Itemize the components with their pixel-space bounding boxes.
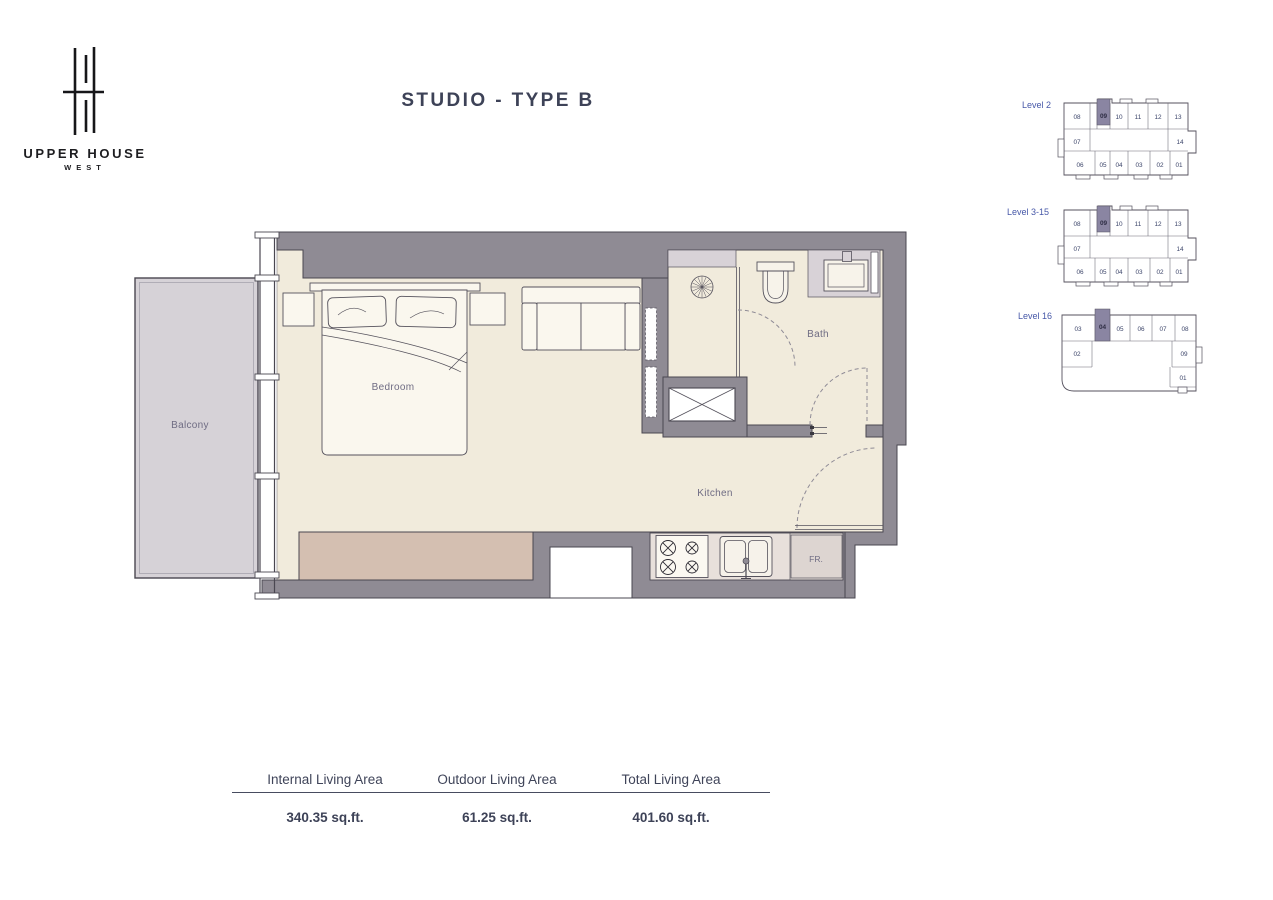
svg-text:02: 02 bbox=[1156, 269, 1164, 276]
svg-text:05: 05 bbox=[1099, 269, 1107, 276]
bedroom-label: Bedroom bbox=[372, 382, 415, 393]
svg-text:07: 07 bbox=[1073, 246, 1081, 253]
keyplan-level-2: Level 2 08 09 10 bbox=[1000, 95, 1210, 195]
svg-text:03: 03 bbox=[1135, 269, 1143, 276]
stat-value: 340.35 sq.ft. bbox=[232, 810, 418, 825]
wall-notch bbox=[550, 547, 632, 598]
svg-text:06: 06 bbox=[1137, 326, 1145, 333]
svg-text:09: 09 bbox=[1100, 113, 1108, 120]
floorplan-drawing: Balcony bbox=[130, 225, 920, 615]
svg-text:08: 08 bbox=[1073, 221, 1081, 228]
svg-text:04: 04 bbox=[1115, 269, 1123, 276]
svg-text:11: 11 bbox=[1135, 221, 1142, 228]
svg-text:04: 04 bbox=[1099, 324, 1107, 331]
svg-text:14: 14 bbox=[1176, 139, 1184, 146]
bath-label: Bath bbox=[807, 329, 829, 340]
wardrobe bbox=[299, 532, 533, 580]
brand-name: UPPER HOUSE bbox=[10, 146, 160, 161]
stat-label: Outdoor Living Area bbox=[404, 772, 590, 787]
svg-text:12: 12 bbox=[1154, 221, 1162, 228]
level-2-label: Level 2 bbox=[1022, 100, 1051, 110]
stats-divider bbox=[232, 792, 770, 793]
balcony-label: Balcony bbox=[171, 420, 209, 431]
svg-text:13: 13 bbox=[1174, 221, 1182, 228]
level-16-label: Level 16 bbox=[1018, 311, 1052, 321]
svg-text:03: 03 bbox=[1135, 162, 1143, 169]
stat-value: 61.25 sq.ft. bbox=[404, 810, 590, 825]
shaft bbox=[669, 388, 735, 421]
floorplan-page: UPPER HOUSE WEST STUDIO - TYPE B Balcony bbox=[0, 0, 1273, 900]
svg-text:09: 09 bbox=[1100, 220, 1108, 227]
brand-tagline: WEST bbox=[10, 163, 160, 172]
brand-logo-icon bbox=[55, 38, 121, 142]
svg-text:01: 01 bbox=[1175, 162, 1183, 169]
stat-label: Internal Living Area bbox=[232, 772, 418, 787]
svg-text:13: 13 bbox=[1174, 114, 1182, 121]
stat-outdoor-area: Outdoor Living Area 61.25 sq.ft. bbox=[404, 772, 590, 825]
svg-text:10: 10 bbox=[1115, 114, 1123, 121]
kitchen-counter: FR. bbox=[650, 533, 843, 580]
svg-text:01: 01 bbox=[1175, 269, 1183, 276]
svg-text:11: 11 bbox=[1135, 114, 1142, 121]
svg-text:10: 10 bbox=[1115, 221, 1123, 228]
sink-icon bbox=[720, 537, 772, 580]
svg-text:12: 12 bbox=[1154, 114, 1162, 121]
level-3-15-highlighted-unit bbox=[1097, 206, 1110, 232]
level-3-15-label: Level 3-15 bbox=[1007, 207, 1049, 217]
keyplan-level-3-15: Level 3-15 08 09 1 bbox=[1000, 202, 1210, 302]
svg-text:03: 03 bbox=[1074, 326, 1082, 333]
svg-text:07: 07 bbox=[1159, 326, 1167, 333]
svg-text:01: 01 bbox=[1179, 375, 1187, 382]
stat-internal-area: Internal Living Area 340.35 sq.ft. bbox=[232, 772, 418, 825]
fridge-label: FR. bbox=[809, 554, 823, 564]
svg-text:07: 07 bbox=[1073, 139, 1081, 146]
balcony: Balcony bbox=[135, 278, 258, 578]
kitchen-label: Kitchen bbox=[697, 488, 732, 499]
stat-value: 401.60 sq.ft. bbox=[578, 810, 764, 825]
page-title: STUDIO - TYPE B bbox=[338, 90, 658, 112]
svg-text:06: 06 bbox=[1076, 269, 1084, 276]
svg-text:02: 02 bbox=[1156, 162, 1164, 169]
svg-text:05: 05 bbox=[1116, 326, 1124, 333]
fridge: FR. bbox=[791, 535, 842, 578]
svg-text:05: 05 bbox=[1099, 162, 1107, 169]
level-2-highlighted-unit bbox=[1097, 99, 1110, 125]
svg-text:06: 06 bbox=[1076, 162, 1084, 169]
sofa bbox=[522, 287, 640, 350]
svg-text:14: 14 bbox=[1176, 246, 1184, 253]
stat-total-area: Total Living Area 401.60 sq.ft. bbox=[578, 772, 764, 825]
svg-text:04: 04 bbox=[1115, 162, 1123, 169]
stat-label: Total Living Area bbox=[578, 772, 764, 787]
svg-text:08: 08 bbox=[1073, 114, 1081, 121]
svg-text:02: 02 bbox=[1073, 351, 1081, 358]
svg-text:09: 09 bbox=[1180, 351, 1188, 358]
keyplan-level-16: Level 16 03 04 05 06 07 08 02 09 bbox=[1000, 305, 1210, 405]
stove-icon bbox=[656, 536, 708, 578]
vanity-sink bbox=[808, 250, 880, 297]
nightstand-left bbox=[283, 293, 314, 326]
svg-text:08: 08 bbox=[1181, 326, 1189, 333]
nightstand-right bbox=[470, 293, 505, 325]
